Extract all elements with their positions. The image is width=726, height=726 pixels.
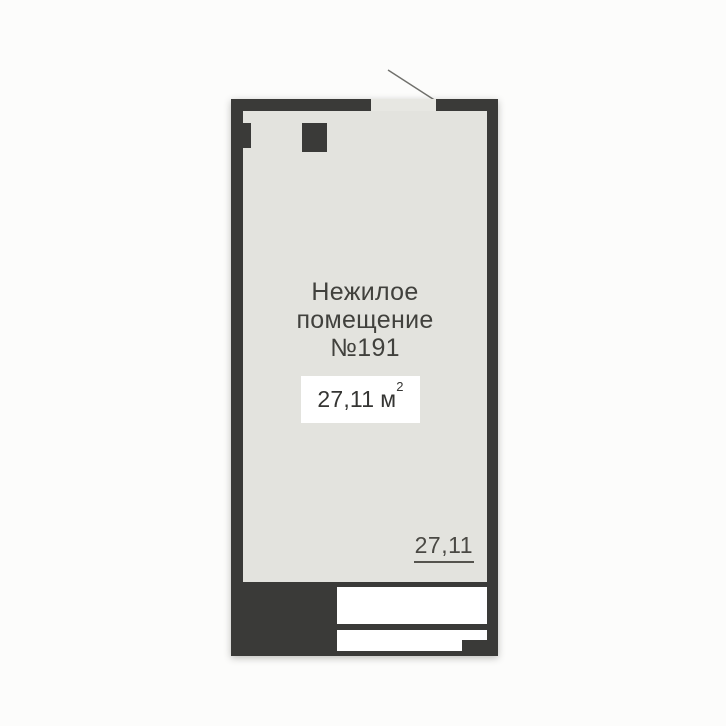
area-badge[interactable]: 27,11 м2: [301, 376, 420, 423]
window-opening-upper: [337, 587, 487, 624]
area-unit: м2: [380, 386, 403, 413]
floorplan-canvas: Нежилое помещение №191 27,11 м2 27,11: [0, 0, 726, 726]
dimension-label: 27,11: [414, 532, 474, 563]
wall-notch: [462, 640, 487, 651]
room-title-line2: помещение: [243, 306, 487, 334]
wall-pilaster: [243, 123, 251, 148]
area-exponent: 2: [396, 379, 403, 394]
room-interior[interactable]: Нежилое помещение №191 27,11 м2 27,11: [243, 111, 487, 582]
room-title-number: №191: [243, 334, 487, 362]
room-title-line1: Нежилое: [243, 278, 487, 306]
unit-floorplan: Нежилое помещение №191 27,11 м2 27,11: [231, 99, 498, 656]
room-title: Нежилое помещение №191: [243, 278, 487, 362]
area-value: 27,11: [317, 386, 374, 413]
door-opening: [371, 99, 436, 111]
wall-column: [302, 123, 327, 152]
